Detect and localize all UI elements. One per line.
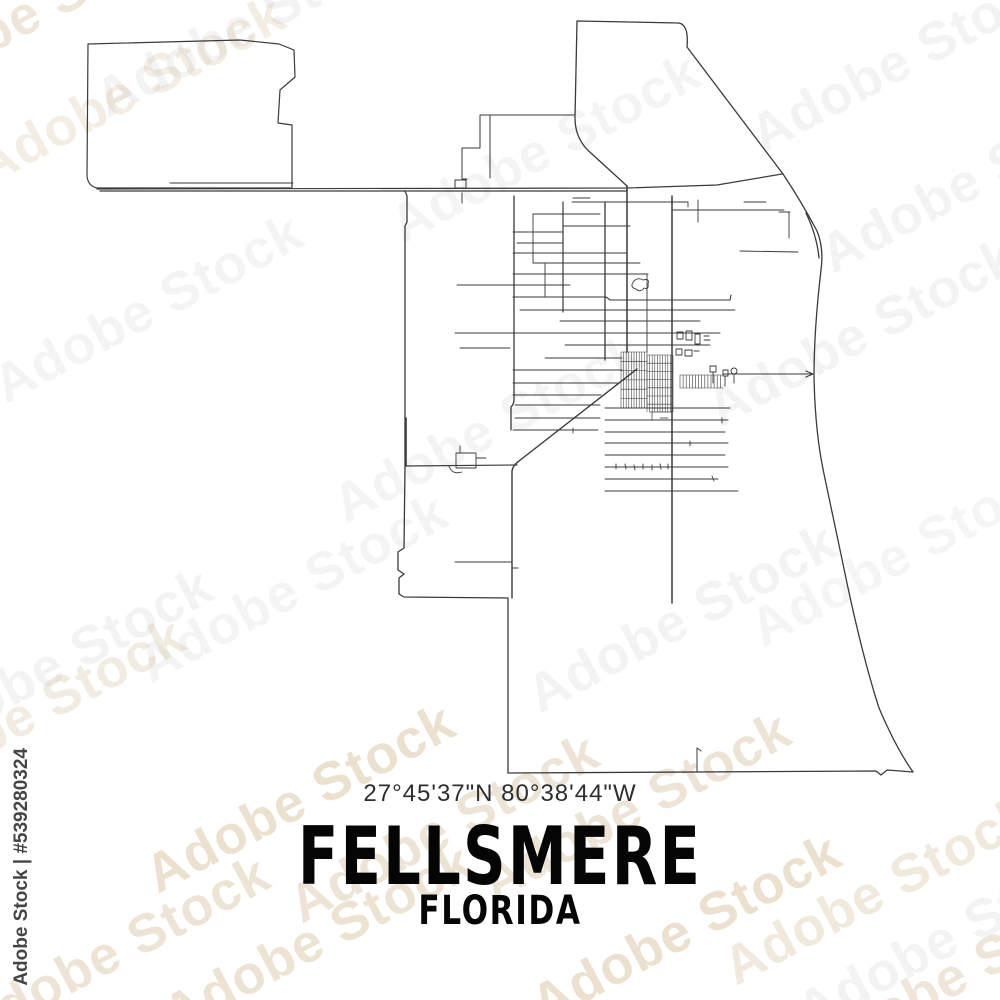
boundary-northwest-block <box>87 40 295 188</box>
downtown-grid-east <box>647 355 673 412</box>
street-connector <box>779 212 790 238</box>
state-subtitle: FLORIDA <box>110 888 890 934</box>
street-row <box>605 464 728 470</box>
road-horizontal-466 <box>405 465 517 466</box>
street-row <box>455 562 518 568</box>
road-diagonal-southwest <box>512 369 637 598</box>
downtown-grid-west <box>621 352 647 408</box>
downtown-comb-strip <box>680 375 723 388</box>
stock-map-image: Adobe StockAdobe StockAdobe StockAdobe S… <box>0 0 1000 1000</box>
street-connector <box>740 251 798 252</box>
boundary-north-funnel <box>575 21 783 186</box>
building-outline <box>449 446 486 473</box>
street-row <box>572 202 688 207</box>
coordinates-text: 27°45'37"N 80°38'44"W <box>0 780 1000 808</box>
hatch-tail <box>650 412 672 420</box>
street-row <box>605 476 718 481</box>
street-row <box>605 418 728 423</box>
boundary-center-north-block <box>455 115 590 203</box>
adobe-stock-id-watermark: Adobe Stock | #539280324 <box>11 748 33 986</box>
road-main-east-west <box>97 174 782 191</box>
boundary-east-curve <box>783 174 913 772</box>
small-structures <box>676 349 699 356</box>
street-row-main <box>513 295 731 300</box>
pond-outline <box>632 279 649 291</box>
boundary-south-edge <box>508 770 913 775</box>
street-row <box>605 441 728 446</box>
south-tick <box>697 748 701 772</box>
boundary-west-edge <box>398 191 508 773</box>
